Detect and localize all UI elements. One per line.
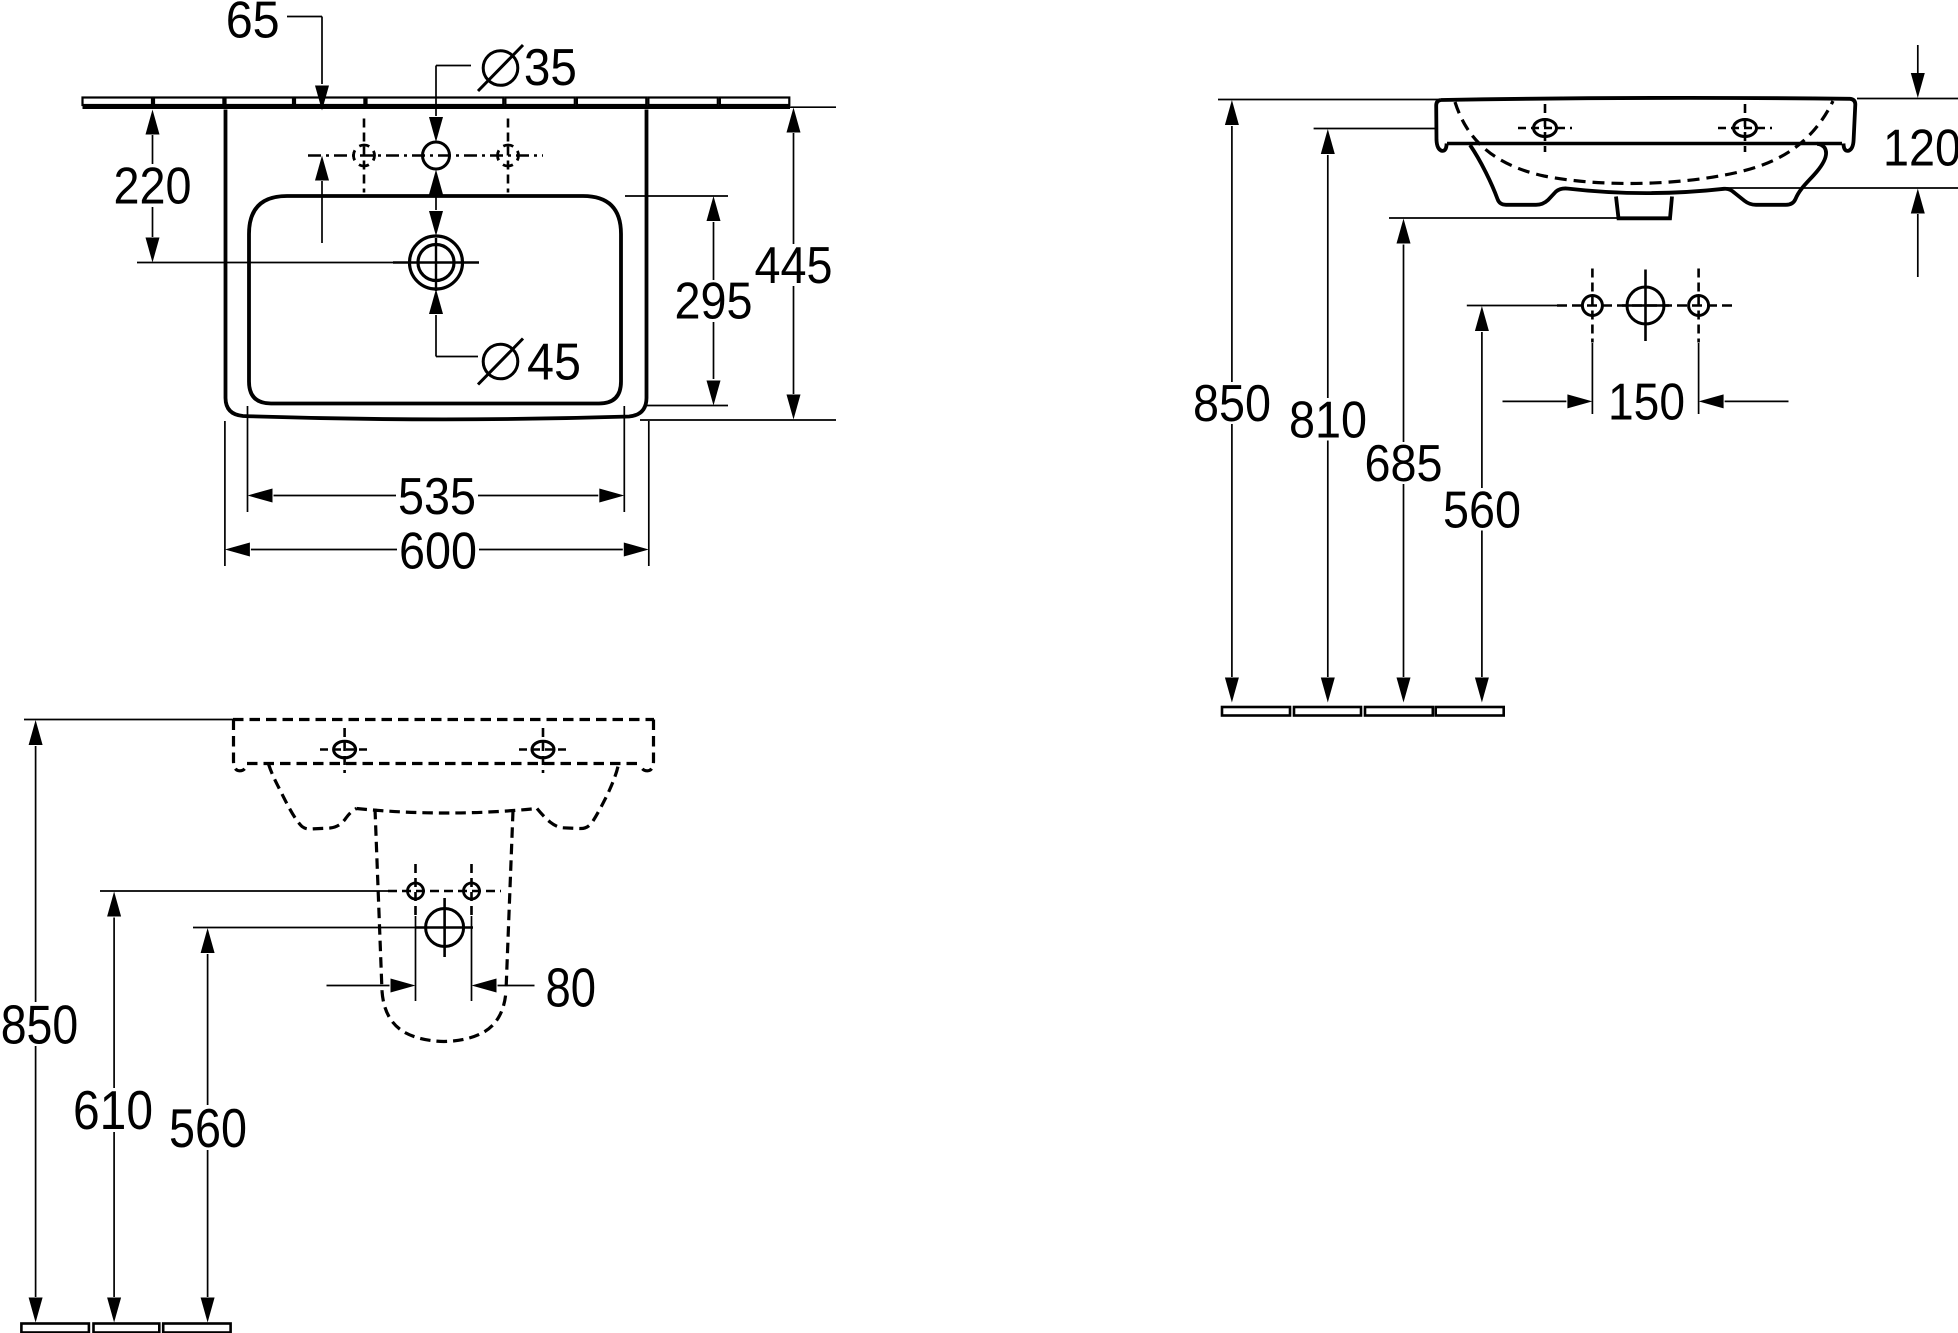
svg-text:220: 220: [114, 158, 192, 216]
svg-text:65: 65: [226, 0, 280, 50]
svg-text:45: 45: [527, 334, 581, 392]
svg-text:35: 35: [524, 39, 577, 97]
svg-text:610: 610: [73, 1079, 153, 1141]
svg-text:80: 80: [546, 957, 597, 1019]
svg-text:295: 295: [675, 273, 753, 331]
svg-text:560: 560: [169, 1097, 247, 1159]
svg-text:120: 120: [1883, 120, 1958, 178]
svg-text:150: 150: [1608, 374, 1685, 432]
svg-text:535: 535: [398, 468, 476, 526]
svg-text:850: 850: [1, 994, 79, 1056]
svg-text:600: 600: [399, 523, 477, 581]
